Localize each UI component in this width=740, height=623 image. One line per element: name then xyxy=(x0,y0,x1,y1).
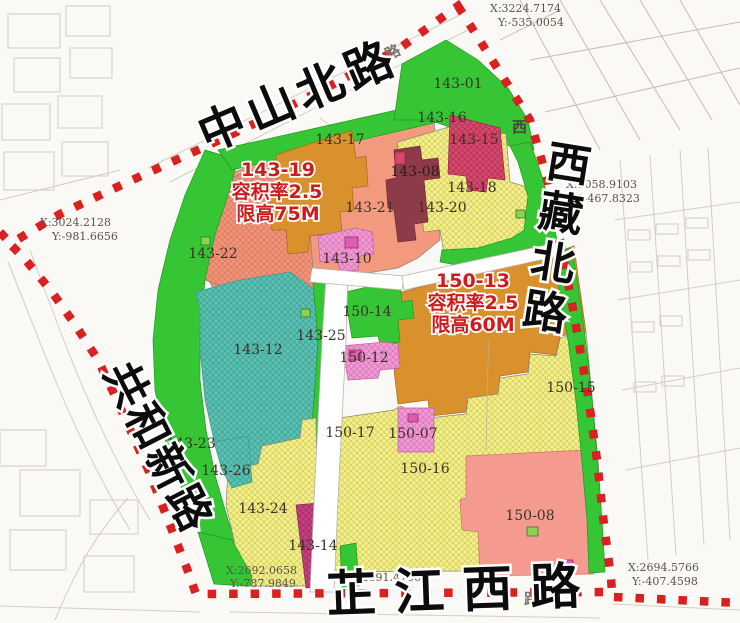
basemap-west-glyph: 西 xyxy=(512,118,527,136)
tree-icon xyxy=(516,210,525,218)
label-143-01: 143-01 xyxy=(433,76,482,92)
label-143-22: 143-22 xyxy=(188,246,237,262)
coord-ne-y: Y:-535.0054 xyxy=(497,16,564,29)
label-150-14: 150-14 xyxy=(342,304,391,320)
landmark-icon xyxy=(345,237,358,248)
annotation-150-13-far: 容积率2.5 xyxy=(428,291,519,314)
label-143-10: 143-10 xyxy=(322,251,371,267)
label-150-12: 150-12 xyxy=(339,350,388,366)
coord-w-y: Y:-981.6656 xyxy=(51,230,118,243)
label-143-15: 143-15 xyxy=(449,132,498,148)
label-143-26: 143-26 xyxy=(201,463,250,479)
coord-se-x: X:2694.5766 xyxy=(628,561,699,574)
coord-w-x: X:3024.2128 xyxy=(40,216,111,229)
label-143-16: 143-16 xyxy=(417,110,466,126)
annotation-150-13-id: 150-13 xyxy=(436,270,510,292)
coord-se-y: Y:-407.4598 xyxy=(631,575,698,588)
coord-sw-x: X:2692.0658 xyxy=(226,564,297,577)
coord-ne-x: X:3224.7174 xyxy=(490,2,561,15)
tree-icon xyxy=(527,527,538,536)
label-143-08: 143-08 xyxy=(390,164,439,180)
annotation-143-19-far: 容积率2.5 xyxy=(232,180,323,203)
landmark-icon xyxy=(408,414,418,422)
label-143-18: 143-18 xyxy=(447,180,496,196)
landmark-icon xyxy=(395,152,405,164)
label-143-14: 143-14 xyxy=(288,538,337,554)
zoning-map: X:3224.7174 Y:-535.0054 X:3058.9103 Y:-4… xyxy=(0,0,740,623)
tree-icon xyxy=(201,237,210,245)
label-143-25: 143-25 xyxy=(296,328,345,344)
label-150-16: 150-16 xyxy=(400,461,449,477)
label-150-15: 150-15 xyxy=(546,380,595,396)
label-143-21: 143-21 xyxy=(345,200,394,216)
label-150-07: 150-07 xyxy=(388,426,437,442)
annotation-150-13-height: 限高60M xyxy=(431,313,514,336)
label-150-08: 150-08 xyxy=(505,508,554,524)
annotation-143-19-height: 限高75M xyxy=(236,202,319,225)
tree-icon xyxy=(301,309,310,317)
label-143-17: 143-17 xyxy=(315,132,364,148)
coord-sw-y: Y:-787.9849 xyxy=(229,577,296,590)
label-150-17: 150-17 xyxy=(325,425,374,441)
label-143-12: 143-12 xyxy=(233,342,282,358)
map-canvas: X:3224.7174 Y:-535.0054 X:3058.9103 Y:-4… xyxy=(0,0,740,623)
annotation-143-19-id: 143-19 xyxy=(241,159,315,181)
label-143-20: 143-20 xyxy=(417,200,466,216)
label-143-24: 143-24 xyxy=(238,501,287,517)
street-zhijiang-west-road: 芷江西路 xyxy=(325,557,599,623)
